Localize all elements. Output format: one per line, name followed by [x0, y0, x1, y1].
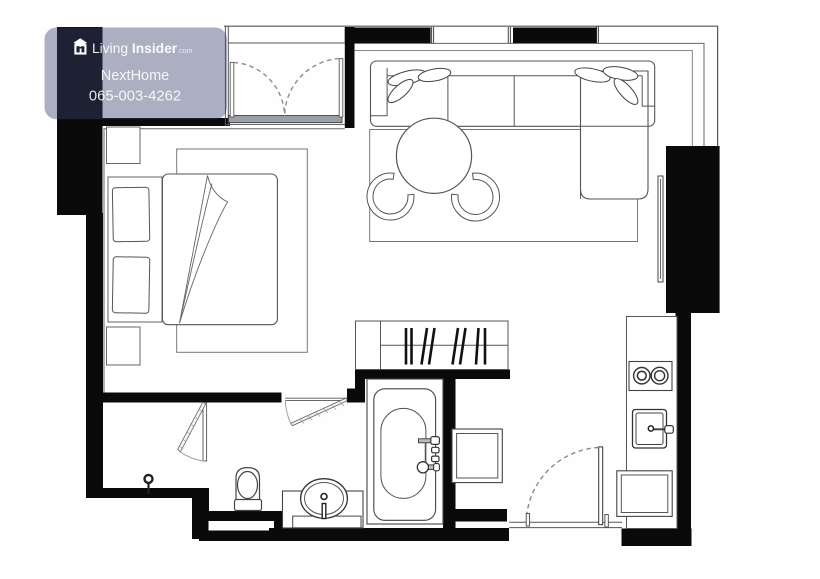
svg-text:NextHome: NextHome [101, 68, 170, 84]
svg-text:065-003-4262: 065-003-4262 [89, 88, 181, 104]
